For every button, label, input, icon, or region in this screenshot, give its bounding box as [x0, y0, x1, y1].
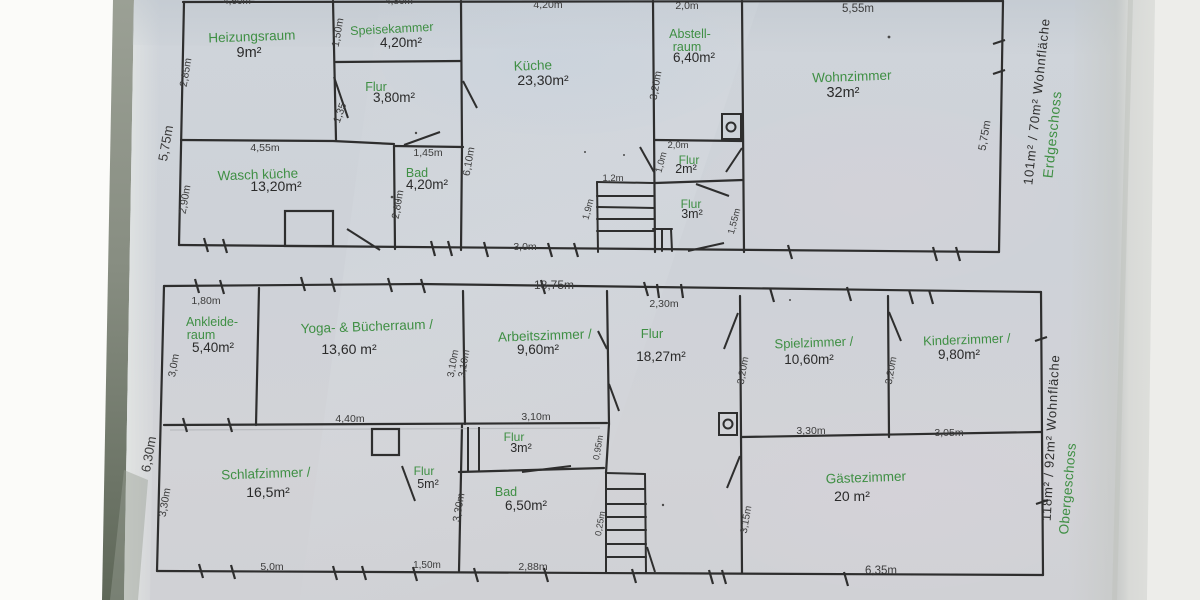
svg-text:4,55m: 4,55m — [250, 142, 279, 154]
svg-text:1,50m: 1,50m — [413, 560, 441, 571]
svg-text:3,0m: 3,0m — [513, 241, 537, 253]
svg-text:Ankleide-: Ankleide- — [186, 315, 238, 329]
svg-text:3m²: 3m² — [681, 207, 703, 221]
svg-text:3,30m: 3,30m — [796, 425, 825, 437]
svg-text:18,75m: 18,75m — [534, 278, 574, 292]
svg-text:2,0m: 2,0m — [667, 140, 688, 151]
svg-text:4,20m²: 4,20m² — [380, 35, 423, 50]
svg-text:9,80m²: 9,80m² — [938, 347, 981, 362]
svg-text:4,40m: 4,40m — [335, 413, 364, 425]
svg-text:13,60 m²: 13,60 m² — [321, 341, 377, 357]
svg-text:Spielzimmer /: Spielzimmer / — [774, 334, 854, 352]
svg-text:3m²: 3m² — [510, 441, 532, 455]
svg-text:6,35m: 6,35m — [865, 565, 897, 577]
svg-text:13,20m²: 13,20m² — [250, 178, 302, 194]
svg-text:9,60m²: 9,60m² — [517, 342, 560, 357]
svg-text:1,2m: 1,2m — [602, 173, 623, 184]
svg-text:3,10m: 3,10m — [521, 411, 550, 423]
svg-text:6,40m²: 6,40m² — [673, 50, 716, 65]
svg-text:5,55m: 5,55m — [842, 3, 874, 15]
svg-text:2m²: 2m² — [675, 162, 697, 176]
svg-text:5m²: 5m² — [417, 477, 439, 491]
svg-text:Abstell-: Abstell- — [669, 27, 711, 41]
svg-text:18,27m²: 18,27m² — [636, 349, 686, 364]
svg-text:Wohnzimmer: Wohnzimmer — [812, 68, 892, 86]
svg-text:Kinderzimmer /: Kinderzimmer / — [923, 330, 1011, 348]
svg-text:32m²: 32m² — [826, 85, 859, 101]
svg-text:2,88m: 2,88m — [518, 561, 547, 573]
svg-text:5,40m²: 5,40m² — [192, 340, 235, 355]
svg-text:4,60m: 4,60m — [223, 0, 251, 7]
svg-text:20 m²: 20 m² — [834, 488, 870, 504]
svg-text:Heizungsraum: Heizungsraum — [208, 27, 296, 45]
svg-text:4,80m: 4,80m — [385, 0, 413, 7]
svg-text:3,05m: 3,05m — [934, 427, 963, 439]
svg-text:Flur: Flur — [641, 326, 664, 341]
svg-text:Gästezimmer: Gästezimmer — [825, 469, 906, 487]
svg-text:4,20m²: 4,20m² — [406, 177, 449, 192]
svg-text:1,80m: 1,80m — [191, 295, 220, 307]
svg-text:6,50m²: 6,50m² — [505, 498, 548, 513]
svg-text:3,80m²: 3,80m² — [373, 90, 416, 105]
svg-text:10,60m²: 10,60m² — [784, 352, 834, 367]
svg-text:9m²: 9m² — [237, 45, 262, 61]
svg-text:4,20m: 4,20m — [533, 0, 562, 11]
svg-text:2,0m: 2,0m — [675, 0, 699, 12]
svg-text:2,30m: 2,30m — [649, 298, 678, 310]
svg-text:5,0m: 5,0m — [260, 561, 284, 573]
svg-text:Schlafzimmer /: Schlafzimmer / — [221, 464, 311, 482]
svg-text:Flur: Flur — [414, 464, 435, 478]
svg-text:Bad: Bad — [495, 485, 517, 499]
svg-text:1,45m: 1,45m — [413, 147, 442, 159]
svg-text:23,30m²: 23,30m² — [517, 72, 569, 88]
svg-text:16,5m²: 16,5m² — [246, 484, 290, 500]
